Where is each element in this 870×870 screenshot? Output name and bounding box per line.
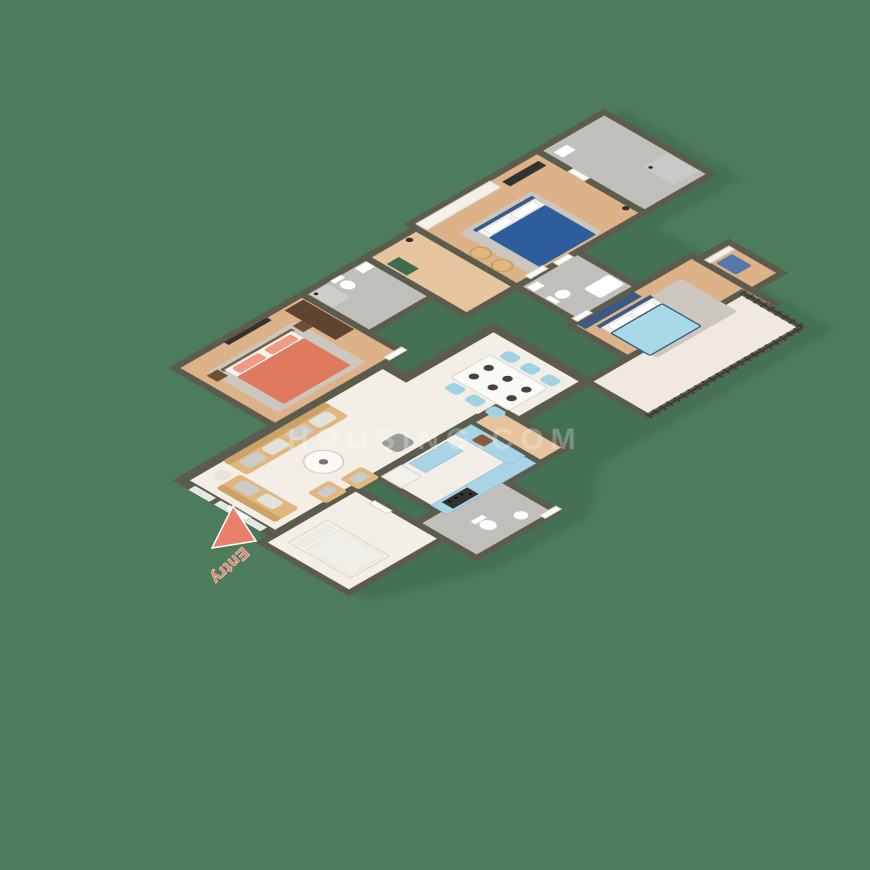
floorplan-image: Entry HOUSING.COM <box>0 0 870 870</box>
floorplan-canvas: Entry <box>0 0 870 870</box>
entry-label: Entry <box>206 543 251 587</box>
isometric-building <box>60 105 870 624</box>
